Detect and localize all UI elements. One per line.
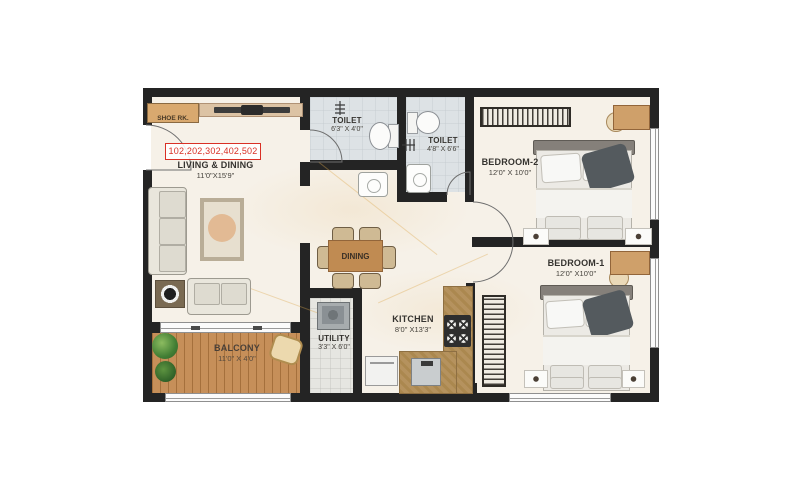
floor-plan: SHOE RK. 102,202,302,402,502 LIVING & DI… [143,88,659,402]
bedroom2-label: BEDROOM-212'0" X 10'0" [460,157,560,178]
balcony-label: BALCONY11'0" X 4'0" [187,343,287,364]
shoe-rack-label: SHOE RK. [148,106,198,126]
unit-numbers-ribbon: 102,202,302,402,502 [165,143,261,160]
toilet1-door-arc [310,130,342,162]
bedroom-doors-arc [473,202,513,282]
kitchen-label: KITCHEN8'0" X13'3" [368,314,458,335]
toilet2-label: TOILET4'8" X 6'6" [413,136,473,155]
utility-label: UTILITY3'3" X 6'0" [311,334,357,353]
toilet1-label: TOILET6'3" X 4'0" [318,116,376,135]
bedroom1-label: BEDROOM-112'0" X10'0" [536,258,616,279]
shower-icon [335,101,345,115]
living-room-label: LIVING & DINING11'0"X15'9" [158,160,273,181]
